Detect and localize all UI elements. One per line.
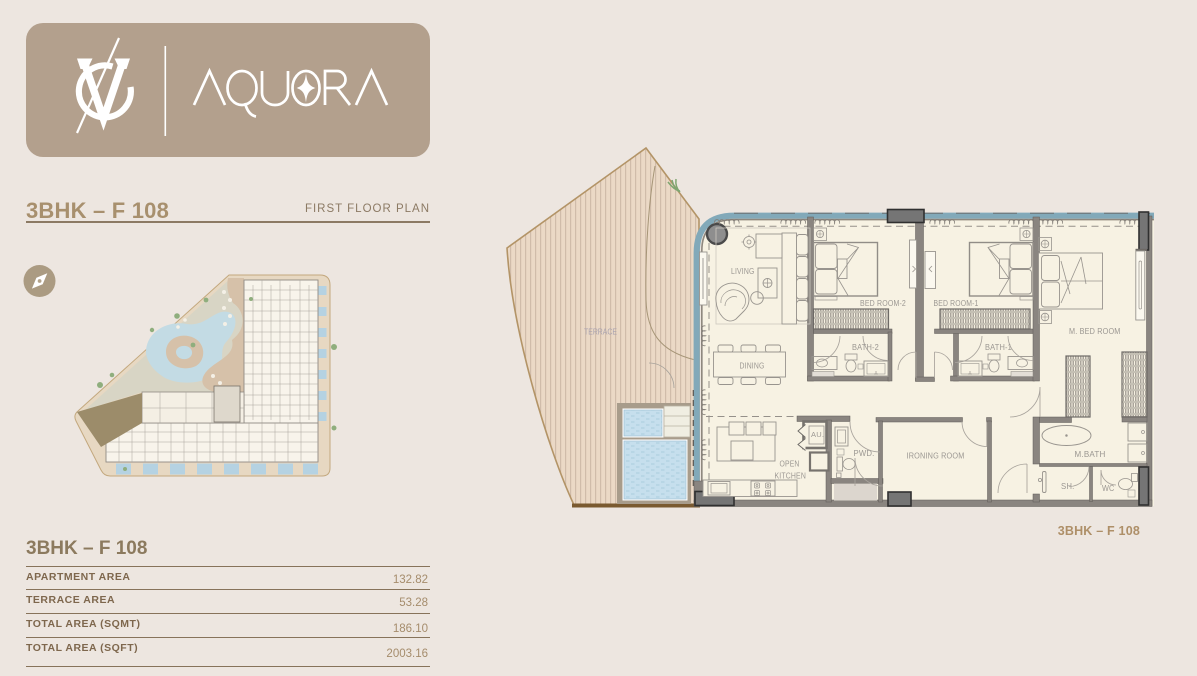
svg-text:PWD.: PWD. (854, 448, 875, 458)
svg-text:M.BATH: M.BATH (1075, 449, 1106, 459)
svg-text:BATH-2: BATH-2 (852, 342, 879, 352)
svg-text:SH.: SH. (1061, 481, 1075, 491)
svg-text:BED ROOM-1: BED ROOM-1 (934, 298, 979, 308)
svg-text:M. BED ROOM: M. BED ROOM (1069, 326, 1121, 336)
svg-text:TERRACE: TERRACE (584, 327, 617, 337)
svg-text:OPEN: OPEN (780, 459, 800, 469)
svg-text:BED ROOM-2: BED ROOM-2 (860, 298, 906, 308)
svg-text:DINING: DINING (740, 361, 765, 371)
svg-text:BATH-1: BATH-1 (985, 342, 1012, 352)
svg-text:KITCHEN: KITCHEN (775, 471, 807, 481)
svg-text:LIVING: LIVING (731, 266, 755, 276)
svg-text:IRONING ROOM: IRONING ROOM (907, 451, 965, 461)
svg-text:WC: WC (1102, 483, 1115, 493)
svg-text:AU.: AU. (811, 430, 824, 439)
